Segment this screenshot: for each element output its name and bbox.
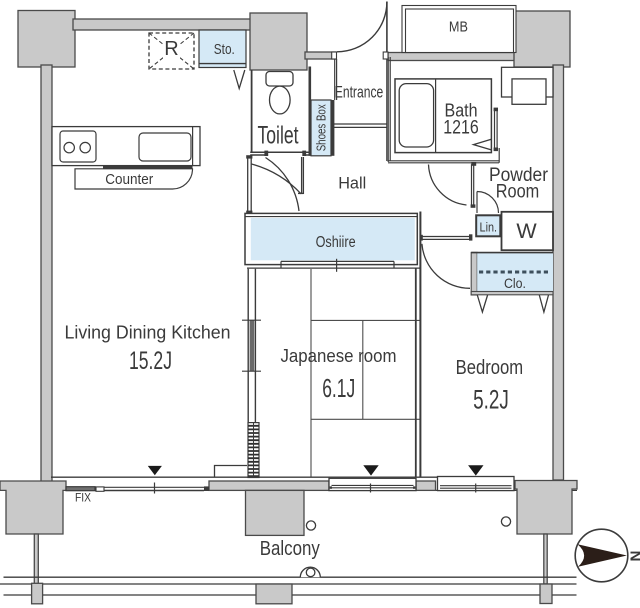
svg-text:Shoes Box: Shoes Box (314, 104, 329, 151)
svg-text:6.1J: 6.1J (322, 375, 355, 403)
svg-text:Toilet: Toilet (258, 122, 299, 150)
svg-text:Entrance: Entrance (335, 83, 384, 102)
svg-text:Living Dining Kitchen: Living Dining Kitchen (65, 323, 231, 343)
svg-text:Bedroom: Bedroom (456, 356, 524, 379)
svg-text:1216: 1216 (443, 117, 479, 139)
svg-text:Hall: Hall (338, 174, 366, 192)
svg-text:Oshiire: Oshiire (316, 234, 356, 251)
svg-text:N: N (627, 551, 640, 562)
svg-text:Japanese room: Japanese room (281, 346, 397, 366)
svg-text:MB: MB (449, 20, 468, 36)
svg-text:Room: Room (496, 182, 540, 203)
svg-text:15.2J: 15.2J (129, 347, 172, 375)
svg-text:Counter: Counter (105, 172, 153, 188)
svg-text:FIX: FIX (75, 490, 91, 504)
svg-text:W: W (516, 219, 537, 243)
svg-text:Sto.: Sto. (214, 41, 235, 58)
svg-text:5.2J: 5.2J (473, 385, 509, 415)
svg-text:Balcony: Balcony (260, 538, 320, 560)
svg-text:Lin.: Lin. (480, 221, 498, 235)
svg-text:Clo.: Clo. (504, 275, 526, 291)
svg-text:R: R (164, 38, 178, 60)
